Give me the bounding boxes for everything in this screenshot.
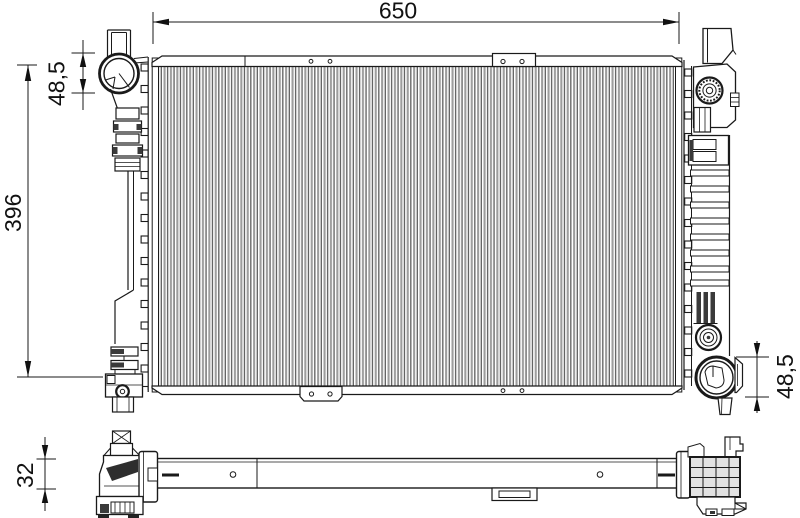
comb-detail [694,292,718,324]
dimension-overall-width: 650 [153,0,679,44]
crimp-joint-left [141,57,149,392]
dimension-core-thickness: 32 [12,437,56,511]
core-fins [159,66,676,386]
filler-neck [703,29,736,64]
dimension-outlet-diameter-label: 48,5 [772,354,798,399]
dimension-inlet-diameter: 48,5 [44,40,96,110]
mounting-bracket-bottom [300,387,342,402]
bottom-header [152,386,682,395]
technical-drawing: 650 396 48,5 48,5 32 [0,0,800,518]
lower-mount-left [106,374,143,412]
crimp-joint-right [684,60,692,390]
hose-connector [113,108,143,171]
lower-bracket-left [111,290,138,374]
dimension-inlet-diameter-label: 48,5 [44,61,70,106]
dimension-overall-width-label: 650 [379,0,417,24]
dimension-overall-height: 396 [0,65,103,377]
profile-beam [157,459,687,489]
outlet-stub [718,398,732,415]
side-clip [731,93,740,107]
mounting-bracket-top [493,54,536,67]
inlet-port [100,54,139,93]
dimension-core-thickness-label: 32 [12,462,38,488]
profile-right-fitting [677,437,747,516]
drawing-canvas: 650 396 48,5 48,5 32 [0,0,800,518]
tank-ribs [689,108,730,357]
profile-left-fitting [97,431,158,518]
drain-port [696,325,721,350]
right-tank [689,29,743,415]
header-band-right [676,58,682,392]
outlet-port [696,357,743,415]
top-header [152,56,682,67]
header-band-left [152,58,158,392]
radiator-front-view [100,29,743,415]
dimension-overall-height-label: 396 [0,194,26,232]
radiator-bottom-view [97,431,747,518]
dimension-outlet-diameter: 48,5 [736,341,798,413]
